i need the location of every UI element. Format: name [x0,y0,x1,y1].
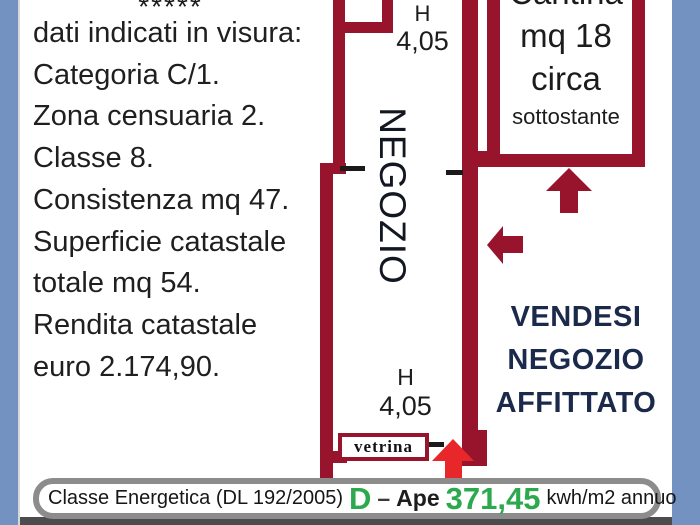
cadastral-line: Superficie catastale [33,222,333,264]
cadastral-line: Consistenza mq 47. [33,180,333,222]
left-arrow-icon [487,226,523,264]
door-tick-right [446,170,463,175]
ceiling-height-top: H 4,05 [380,1,465,56]
energy-law-label: Classe Energetica (DL 192/2005) [48,487,343,510]
up-arrow-icon [546,168,592,214]
cadastral-line: Categoria C/1. [33,55,333,97]
energy-unit: kwh/m2 annuo [546,487,676,510]
listing-flyer: ***** dati indicati in visura: Categoria… [0,0,700,525]
room-label: NEGOZIO [370,86,414,306]
cadastral-line: Rendita catastale [33,305,333,347]
energy-value: 371,45 [446,481,541,517]
cantina-room-box: Cantina mq 18 circa sottostante [487,0,645,167]
cantina-area: mq 18 [500,14,632,57]
sale-sign: VENDESI NEGOZIO AFFITTATO [480,296,672,425]
cadastral-line: dati indicati in visura: [33,13,333,55]
door-tick-left [340,166,365,171]
sale-sign-line: NEGOZIO [480,339,672,382]
energy-class-letter: D [349,481,371,517]
left-blue-strip [0,0,20,525]
sale-sign-line: VENDESI [480,296,672,339]
wall-main-left [320,163,333,478]
cadastral-data-panel: dati indicati in visura: Categoria C/1. … [33,13,333,388]
cantina-circa: circa [500,57,632,100]
cantina-title: Cantina [500,0,632,14]
energy-separator: – [377,485,390,512]
entrance-arrow-icon [432,439,474,479]
shop-window-label: vetrina [354,437,413,456]
cadastral-line: totale mq 54. [33,263,333,305]
cadastral-line: Classe 8. [33,138,333,180]
sale-sign-line: AFFITTATO [480,382,672,425]
ceiling-height-bottom: H 4,05 [363,363,448,421]
shop-window-box: vetrina [338,433,429,461]
wall-right [462,0,478,440]
right-blue-strip [672,0,700,525]
cantina-note: sottostante [500,100,632,133]
energy-ape-label: Ape [396,485,439,512]
energy-class-banner: Classe Energetica (DL 192/2005) D – Ape … [33,478,661,519]
cadastral-line: Zona censuaria 2. [33,96,333,138]
cadastral-line: euro 2.174,90. [33,347,333,389]
